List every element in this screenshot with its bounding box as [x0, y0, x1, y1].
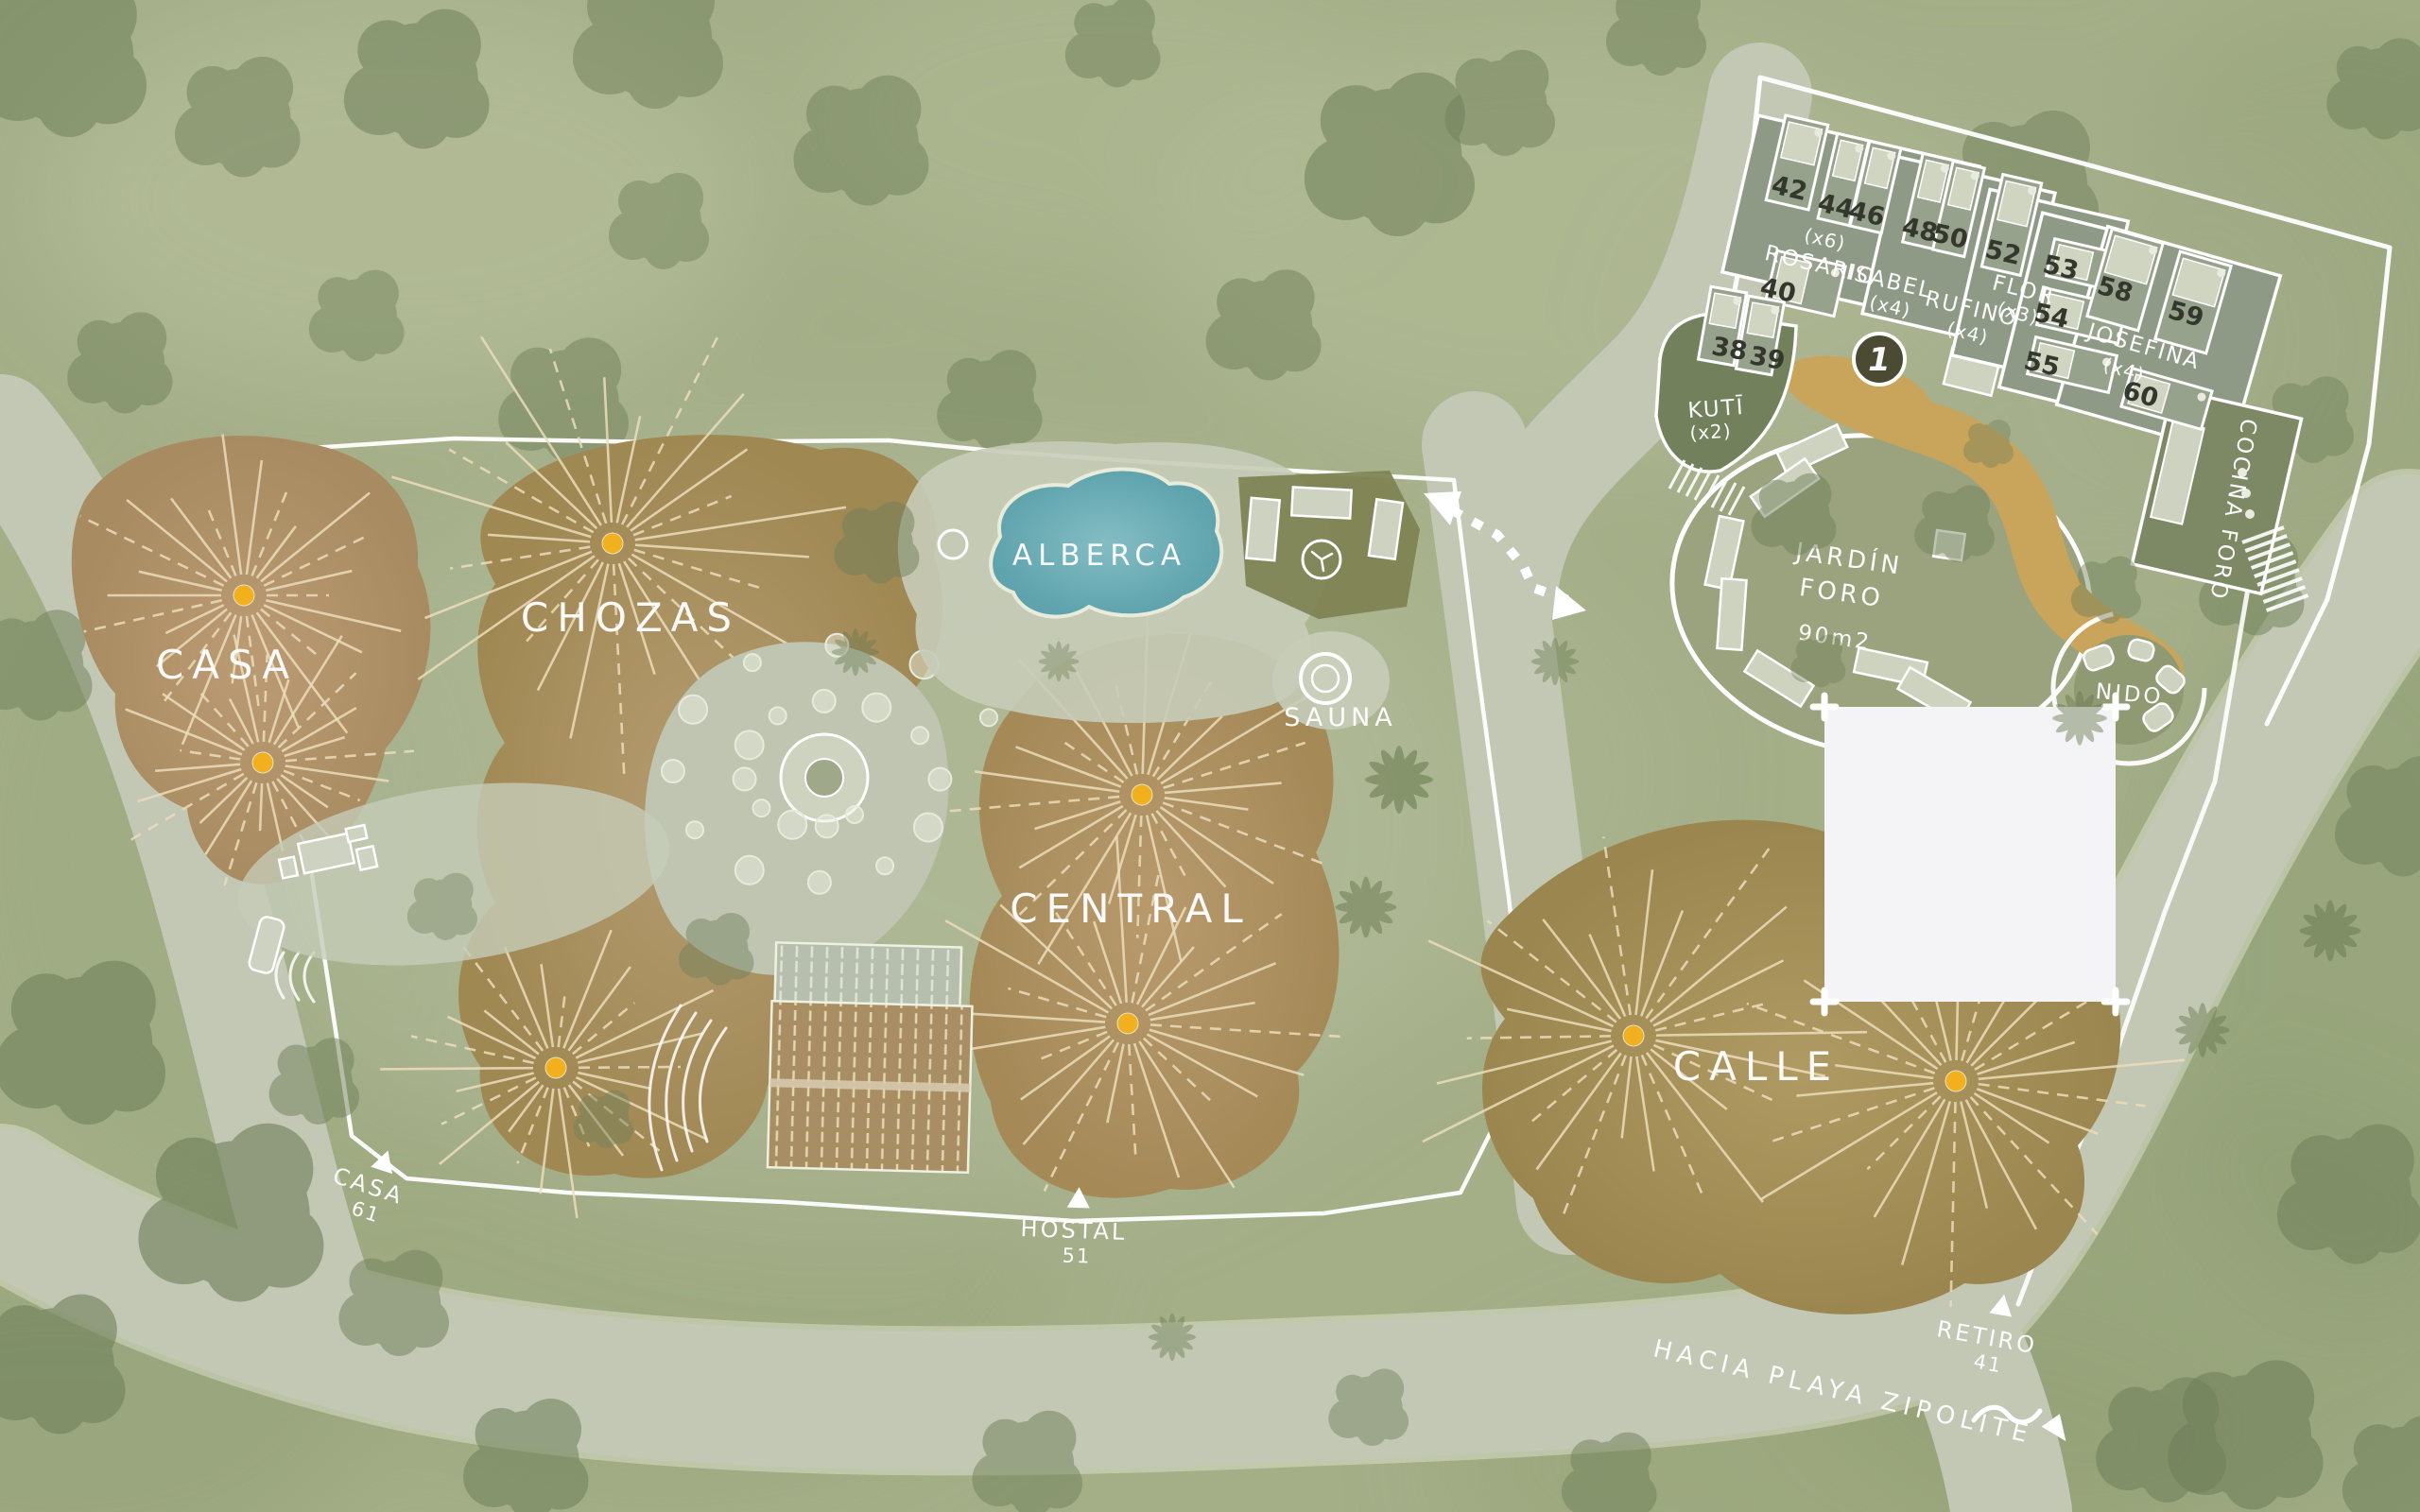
central-label: CENTRAL [1010, 885, 1252, 932]
marker-1-badge: 1 [1854, 334, 1905, 385]
site-plan-map: ALBERCA SAUNA CASA CHOZAS CENTRAL CALLE [0, 0, 2420, 1512]
room-number-39: 39 [1747, 341, 1787, 376]
kuti-count: (x2) [1689, 420, 1733, 445]
sauna-icon [1301, 654, 1350, 703]
gate-hostal-label: HOSTAL [1020, 1215, 1128, 1246]
alberca-label: ALBERCA [1012, 539, 1186, 573]
casa-label: CASA [156, 642, 298, 688]
calle-label: CALLE [1673, 1043, 1840, 1090]
chair-icon [346, 825, 367, 842]
room-number-38: 38 [1709, 332, 1749, 367]
marker-1-number: 1 [1868, 341, 1891, 379]
bench-icon [1291, 487, 1351, 518]
lounger-icon [1246, 498, 1279, 560]
striped-building [768, 942, 974, 1172]
pool-and-sauna-zone: ALBERCA SAUNA [898, 441, 1420, 732]
cocina-fixture [2245, 509, 2255, 519]
sauna-label: SAUNA [1284, 703, 1397, 732]
chair-icon [356, 846, 377, 869]
chozas-label: CHOZAS [521, 594, 740, 641]
chair-icon [279, 857, 298, 879]
gate-hostal-number: 51 [1062, 1245, 1092, 1268]
kuti-label: KUTĪ [1687, 394, 1746, 423]
